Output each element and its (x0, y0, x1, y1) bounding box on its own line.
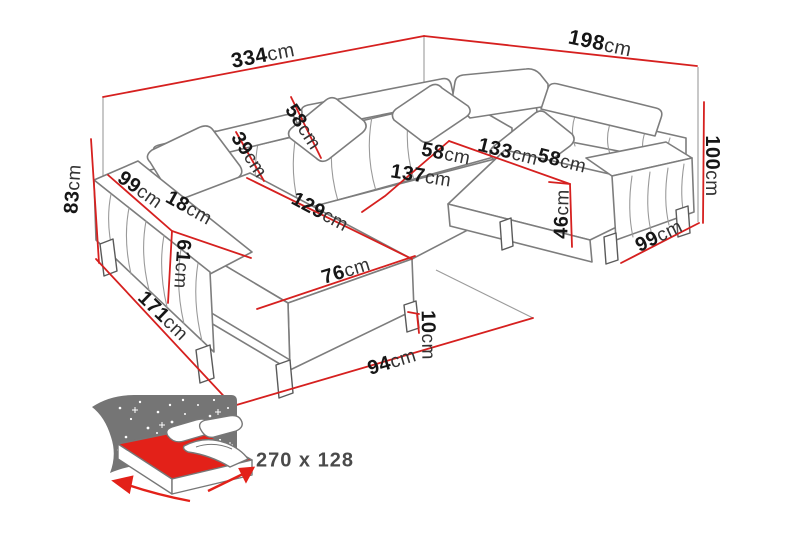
sofa-outline (94, 69, 694, 398)
diagram-line-art (0, 0, 800, 533)
dim-label-total-height-right: 100cm (702, 135, 722, 196)
arrow-left-head (114, 477, 132, 492)
leg (500, 218, 513, 250)
sofa-dimension-diagram: 334cm 198cm 83cm 99cm 18cm 61cm 39cm 58c… (0, 0, 800, 533)
dim-label-armrest-front-height: 61cm (170, 239, 193, 290)
sleeping-area-size-label: 270 x 128 (256, 450, 354, 473)
leg (196, 345, 214, 383)
dim-label-seat-height: 46cm (551, 189, 573, 239)
dim-label-leg-height: 10cm (418, 310, 439, 360)
dim-line-198 (424, 36, 697, 66)
leg (604, 233, 618, 264)
bed-icon (92, 395, 253, 501)
dim-label-back-height: 83cm (61, 164, 84, 215)
